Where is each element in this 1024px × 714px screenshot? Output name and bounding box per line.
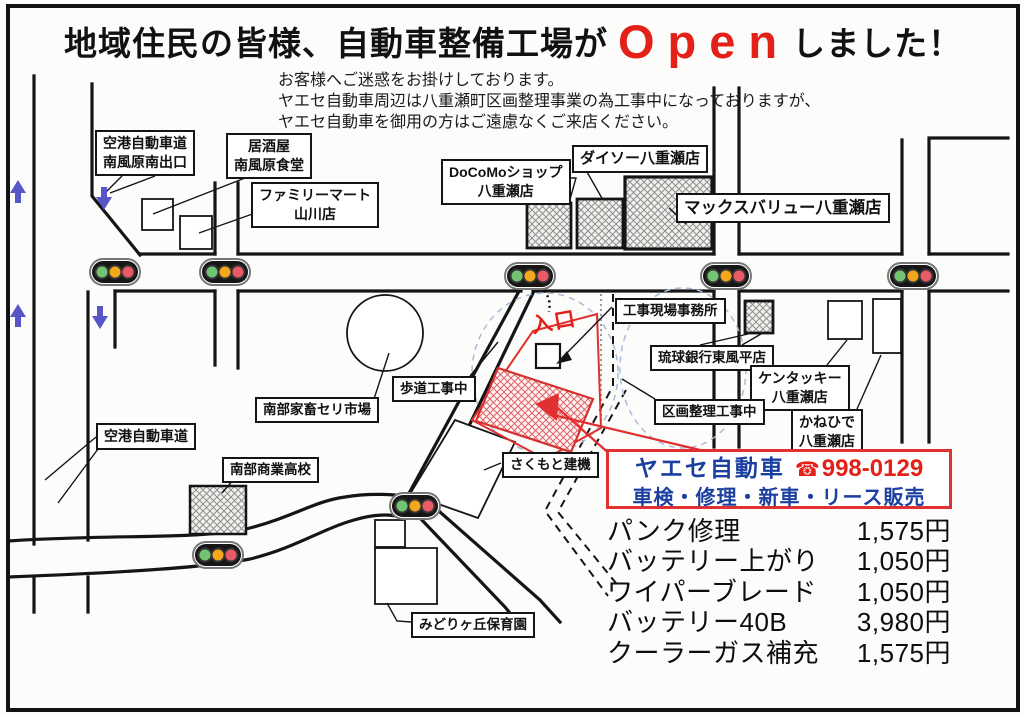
price-row: ワイパーブレード 1,050円 [607,577,951,607]
label-daiso: ダイソー八重瀬店 [572,145,708,173]
label-izakaya: 居酒屋 南風原食堂 [226,133,312,179]
label-kentucky: ケンタッキー 八重瀬店 [750,365,850,411]
shop-phone: ☎998-0129 [795,455,923,483]
price-row: パンク修理 1,575円 [607,516,951,546]
traffic-light-icon [193,542,243,568]
headline-post: しました！ [792,25,962,62]
label-maxvalu: マックスバリュー八重瀬店 [676,193,890,223]
label-familymart: ファミリーマート 山川店 [251,182,379,228]
price-value: 1,050円 [857,546,951,576]
shop-info-box: ヤエセ自動車 ☎998-0129 車検・修理・新車・リース販売 [606,449,952,509]
phone-icon: ☎ [795,459,820,481]
price-value: 1,575円 [857,638,951,668]
traffic-light-icon [505,263,555,289]
notice-text: お客様へご迷惑をお掛けしております。 ヤエセ自動車周辺は八重瀬町区画整理事業の為… [278,70,820,133]
direction-arrow-icon [92,306,108,329]
label-docomo: DoCoMoショップ 八重瀬店 [441,159,571,205]
entrance-hut [536,344,560,368]
price-value: 3,980円 [857,607,951,637]
label-sakumoto: さくもと建機 [502,452,599,478]
traffic-light-icon [90,259,140,285]
headline-pre: 地域住民の皆様、自動車整備工場が [64,25,608,62]
label-airport-exit: 空港自動車道 南風原南出口 [95,130,195,176]
shop-property [472,314,700,459]
label-nanbu-high: 南部商業高校 [222,457,319,483]
label-midorigaoka: みどりヶ丘保育園 [411,612,535,638]
direction-arrow-icon [10,180,26,203]
price-item: バッテリー40B [607,607,787,637]
cattle-market-circle [347,295,423,371]
price-item: クーラーガス補充 [607,638,819,668]
notice-line-2: ヤエセ自動車周辺は八重瀬町区画整理事業の為工事中になっておりますが、 [278,91,820,112]
price-row: バッテリー40B 3,980円 [607,607,951,637]
price-value: 1,050円 [857,577,951,607]
flyer: 地域住民の皆様、自動車整備工場がOpenしました！ お客様へご迷惑をお掛けしてお… [0,0,1024,714]
phone-number: 998-0129 [822,455,923,482]
price-item: ワイパーブレード [607,577,817,607]
traffic-light-icon [701,263,751,289]
price-row: バッテリー上がり 1,050円 [607,546,951,576]
traffic-light-icon [888,263,938,289]
label-airport-road: 空港自動車道 [96,423,196,450]
headline-open: Open [618,15,790,68]
notice-line-3: ヤエセ自動車を御用の方はご遠慮なくご来店ください。 [278,112,820,133]
label-kukaku-koji: 区画整理工事中 [654,399,765,425]
direction-arrow-icon [10,304,26,327]
price-item: バッテリー上がり [607,546,819,576]
label-site-office: 工事現場事務所 [615,298,726,324]
headline: 地域住民の皆様、自動車整備工場がOpenしました！ [64,14,984,69]
shop-services: 車検・修理・新車・リース販売 [633,481,926,510]
price-list: パンク修理 1,575円 バッテリー上がり 1,050円 ワイパーブレード 1,… [607,516,951,668]
label-hodo-koji: 歩道工事中 [392,376,476,402]
shop-name: ヤエセ自動車 [635,449,785,483]
traffic-light-icon [200,259,250,285]
direction-arrow-icon [96,187,112,210]
price-item: パンク修理 [607,516,741,546]
price-row: クーラーガス補充 1,575円 [607,638,951,668]
price-value: 1,575円 [857,516,951,546]
notice-line-1: お客様へご迷惑をお掛けしております。 [278,70,820,91]
traffic-light-icon [390,493,440,519]
label-cattle-market: 南部家畜セリ市場 [255,397,379,423]
